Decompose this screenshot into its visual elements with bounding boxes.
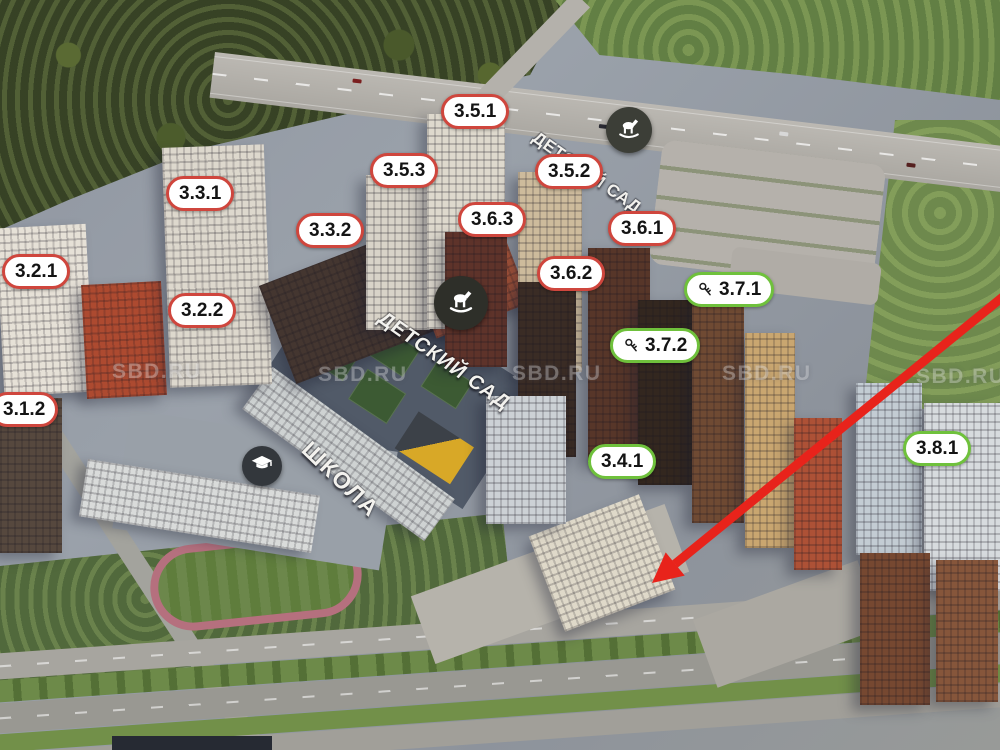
building-label-3.5.1[interactable]: 3.5.1: [441, 94, 509, 129]
rocking-horse-icon: [445, 285, 477, 322]
car: [906, 163, 915, 168]
building-label-3.2.2[interactable]: 3.2.2: [168, 293, 236, 328]
masterplan-canvas: ДЕТСКИЙ САД ДЕТСКИЙ САД ШКОЛА: [0, 0, 1000, 750]
building-label-3.8.1[interactable]: 3.8.1: [903, 431, 971, 466]
watermark: SBD.RU: [916, 365, 1000, 389]
watermark: SBD.RU: [112, 360, 202, 384]
building-3-7-1: [692, 298, 744, 523]
building-label-3.6.3[interactable]: 3.6.3: [458, 202, 526, 237]
building-label-text: 3.2.1: [15, 262, 57, 281]
keys-icon: [697, 281, 715, 299]
building-3-8-1: [856, 383, 922, 555]
building-3-5-3: [366, 175, 430, 330]
parked-cars-row: [112, 736, 272, 750]
building-label-3.1.2[interactable]: 3.1.2: [0, 392, 58, 427]
building-3-2-1: [0, 224, 94, 396]
building-label-text: 3.4.1: [601, 452, 643, 471]
building-label-text: 3.3.1: [179, 184, 221, 203]
building-label-text: 3.6.1: [621, 219, 663, 238]
building-label-text: 3.7.1: [719, 280, 761, 299]
watermark: SBD.RU: [318, 363, 408, 387]
building-label-text: 3.3.2: [309, 221, 351, 240]
building-label-3.7.2[interactable]: 3.7.2: [610, 328, 700, 363]
building-label-3.5.2[interactable]: 3.5.2: [535, 154, 603, 189]
building-label-text: 3.8.1: [916, 439, 958, 458]
rocking-horse-icon: [615, 114, 643, 147]
building-label-text: 3.6.2: [550, 264, 592, 283]
building-brown-tower: [936, 560, 998, 702]
building-brown-tower: [860, 553, 930, 705]
building-label-text: 3.6.3: [471, 210, 513, 229]
keys-icon: [623, 337, 641, 355]
graduation-cap-icon: [249, 451, 275, 482]
building-label-3.7.1[interactable]: 3.7.1: [684, 272, 774, 307]
building-label-3.2.1[interactable]: 3.2.1: [2, 254, 70, 289]
building-label-text: 3.5.2: [548, 162, 590, 181]
kindergarten-poi[interactable]: [434, 276, 488, 330]
building-white-mid: [486, 396, 566, 524]
building-label-text: 3.2.2: [181, 301, 223, 320]
green-field-top: [555, 0, 1000, 100]
building-label-text: 3.1.2: [3, 400, 45, 419]
building-label-3.4.1[interactable]: 3.4.1: [588, 444, 656, 479]
watermark: SBD.RU: [722, 362, 812, 386]
building-label-text: 3.7.2: [645, 336, 687, 355]
kindergarten-poi[interactable]: [606, 107, 652, 153]
car: [779, 131, 788, 136]
building-label-3.3.1[interactable]: 3.3.1: [166, 176, 234, 211]
watermark: SBD.RU: [512, 362, 602, 386]
building-label-3.3.2[interactable]: 3.3.2: [296, 213, 364, 248]
building-label-3.6.1[interactable]: 3.6.1: [608, 211, 676, 246]
building-label-3.5.3[interactable]: 3.5.3: [370, 153, 438, 188]
building-label-text: 3.5.1: [454, 102, 496, 121]
building-label-text: 3.5.3: [383, 161, 425, 180]
building-orange-tower: [794, 418, 842, 570]
school-poi[interactable]: [242, 446, 282, 486]
car: [352, 79, 361, 84]
building-label-3.6.2[interactable]: 3.6.2: [537, 256, 605, 291]
